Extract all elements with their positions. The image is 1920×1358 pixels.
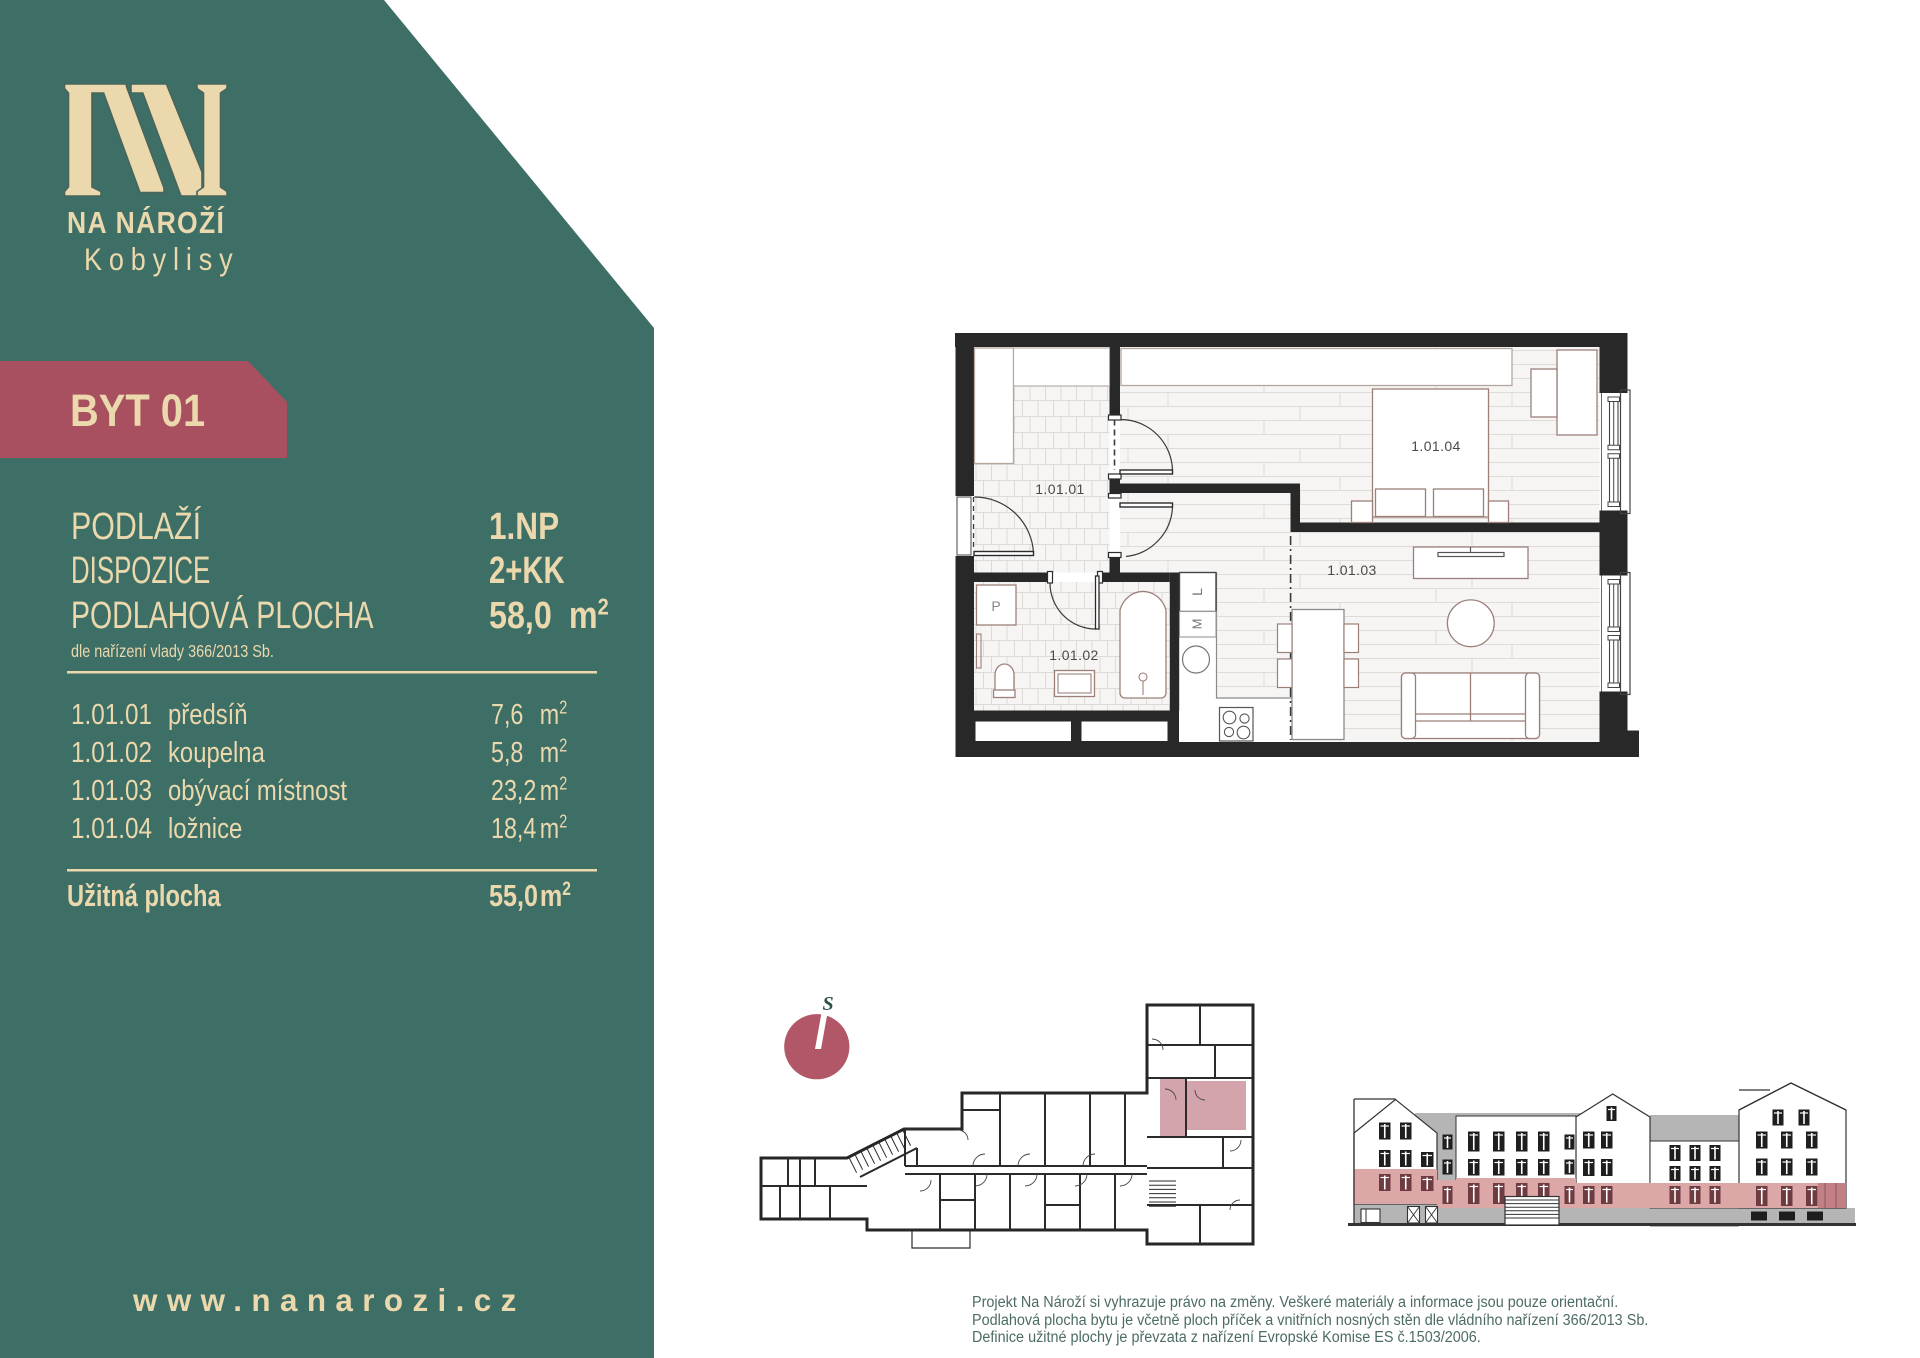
svg-text:L: L: [1189, 588, 1205, 596]
svg-text:1.01.03: 1.01.03: [1327, 562, 1377, 578]
svg-text:S: S: [822, 993, 833, 1015]
svg-text:1.01.02: 1.01.02: [1049, 647, 1099, 663]
svg-text:M: M: [1190, 619, 1205, 630]
svg-text:1.01.01: 1.01.01: [1035, 481, 1085, 497]
svg-text:P: P: [991, 598, 1000, 614]
svg-text:1.01.04: 1.01.04: [1411, 438, 1461, 454]
